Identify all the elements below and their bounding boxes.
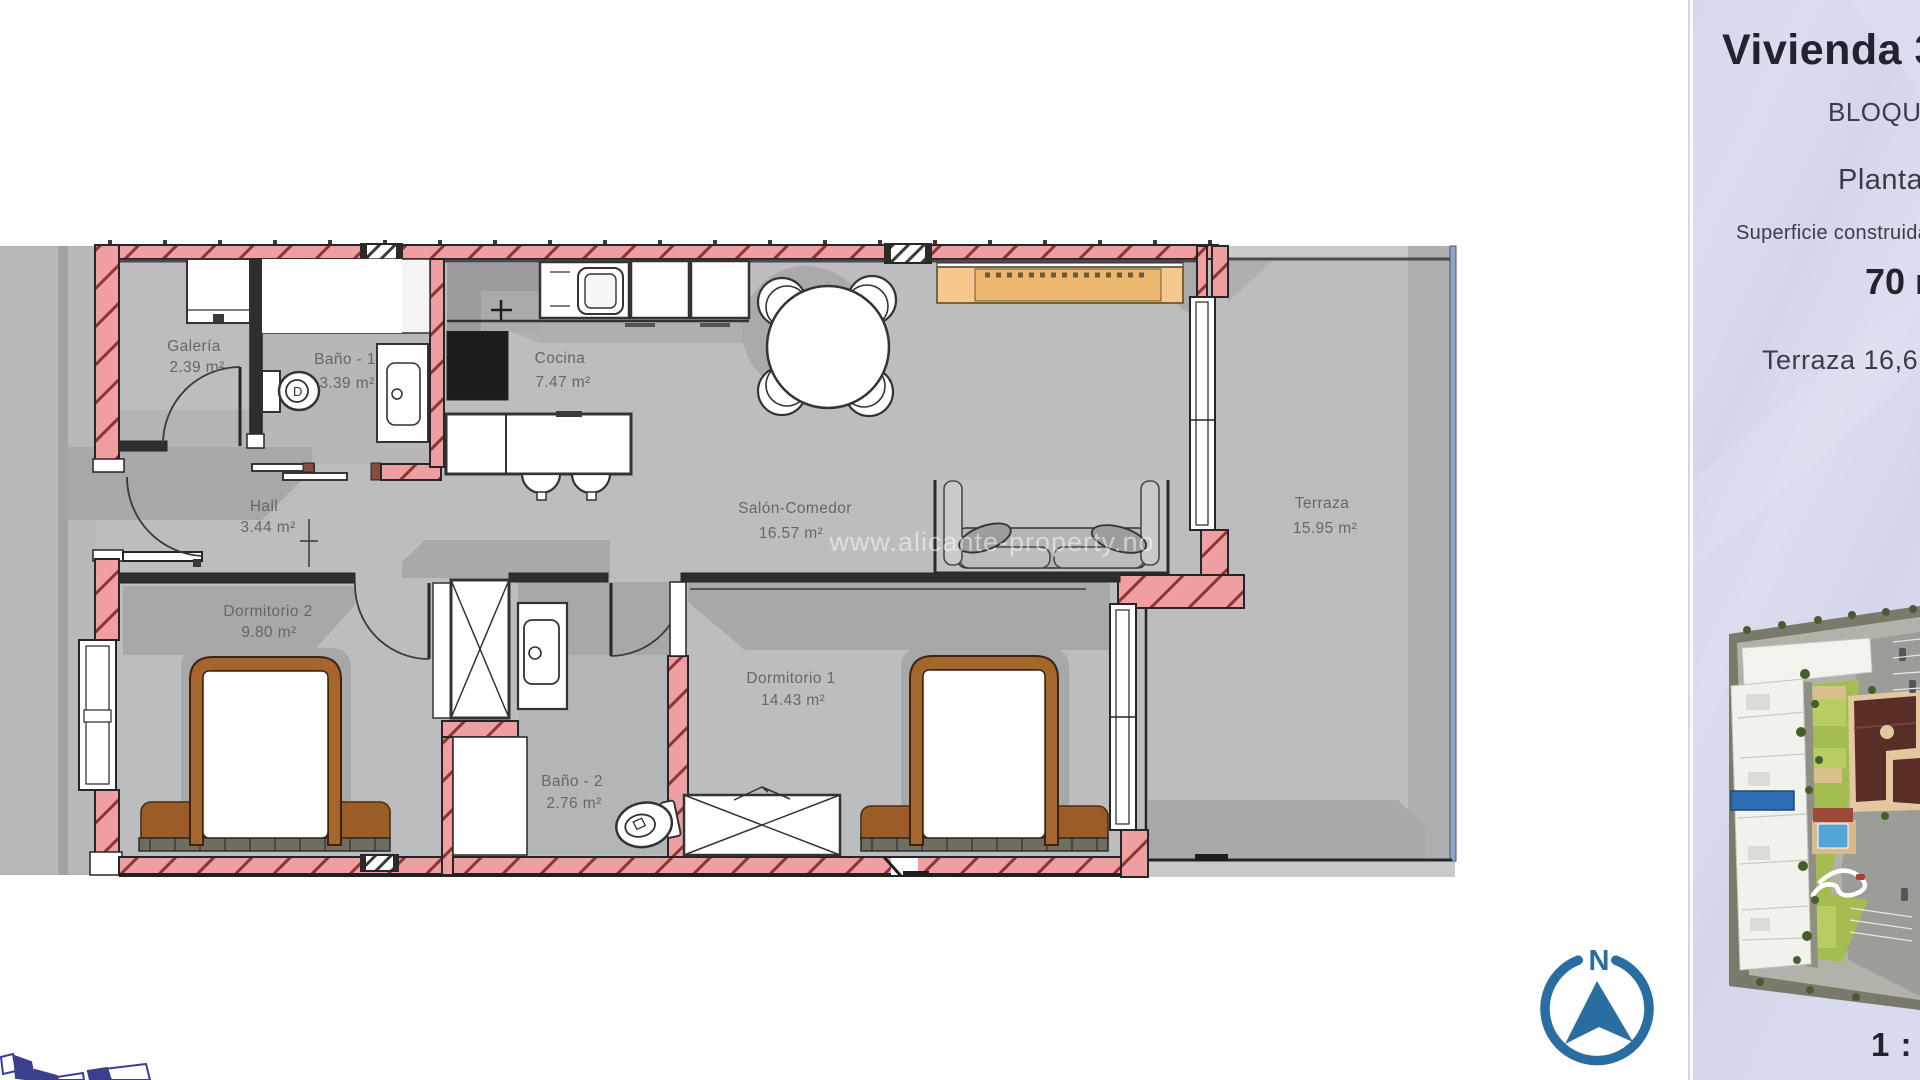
svg-text:15.95 m²: 15.95 m² xyxy=(1293,520,1357,537)
svg-text:Hall: Hall xyxy=(250,498,278,515)
svg-text:Dormitorio 1: Dormitorio 1 xyxy=(746,670,835,687)
svg-text:Baño - 1: Baño - 1 xyxy=(314,351,376,368)
svg-text:3.39 m²: 3.39 m² xyxy=(319,375,374,392)
svg-text:Cocina: Cocina xyxy=(535,350,586,367)
svg-text:D: D xyxy=(293,384,302,399)
svg-text:Baño - 2: Baño - 2 xyxy=(541,773,603,790)
svg-text:70 m²: 70 m² xyxy=(1865,261,1920,302)
svg-text:www.alicante-property.no: www.alicante-property.no xyxy=(828,527,1154,557)
svg-text:2.39 m²: 2.39 m² xyxy=(169,359,224,376)
svg-text:Planta 2: Planta 2 xyxy=(1838,164,1920,196)
svg-text:BLOQUE 2: BLOQUE 2 xyxy=(1828,97,1920,127)
svg-text:N: N xyxy=(1589,945,1610,977)
svg-text:Salón-Comedor: Salón-Comedor xyxy=(738,500,852,517)
svg-text:1 : 75: 1 : 75 xyxy=(1871,1026,1920,1063)
svg-text:9.80 m²: 9.80 m² xyxy=(241,624,296,641)
svg-text:Galería: Galería xyxy=(167,338,221,355)
svg-text:Terraza 16,6 m²: Terraza 16,6 m² xyxy=(1762,345,1920,375)
svg-text:7.47 m²: 7.47 m² xyxy=(535,374,590,391)
svg-text:Superficie construida:: Superficie construida: xyxy=(1736,222,1920,244)
svg-text:2.76 m²: 2.76 m² xyxy=(546,795,601,812)
svg-text:Dormitorio 2: Dormitorio 2 xyxy=(223,603,312,620)
svg-text:Vivienda 3: Vivienda 3 xyxy=(1722,26,1920,74)
svg-text:16.57 m²: 16.57 m² xyxy=(759,525,823,542)
svg-text:14.43 m²: 14.43 m² xyxy=(761,692,825,709)
svg-text:3.44 m²: 3.44 m² xyxy=(240,519,295,536)
svg-text:Terraza: Terraza xyxy=(1295,495,1349,512)
